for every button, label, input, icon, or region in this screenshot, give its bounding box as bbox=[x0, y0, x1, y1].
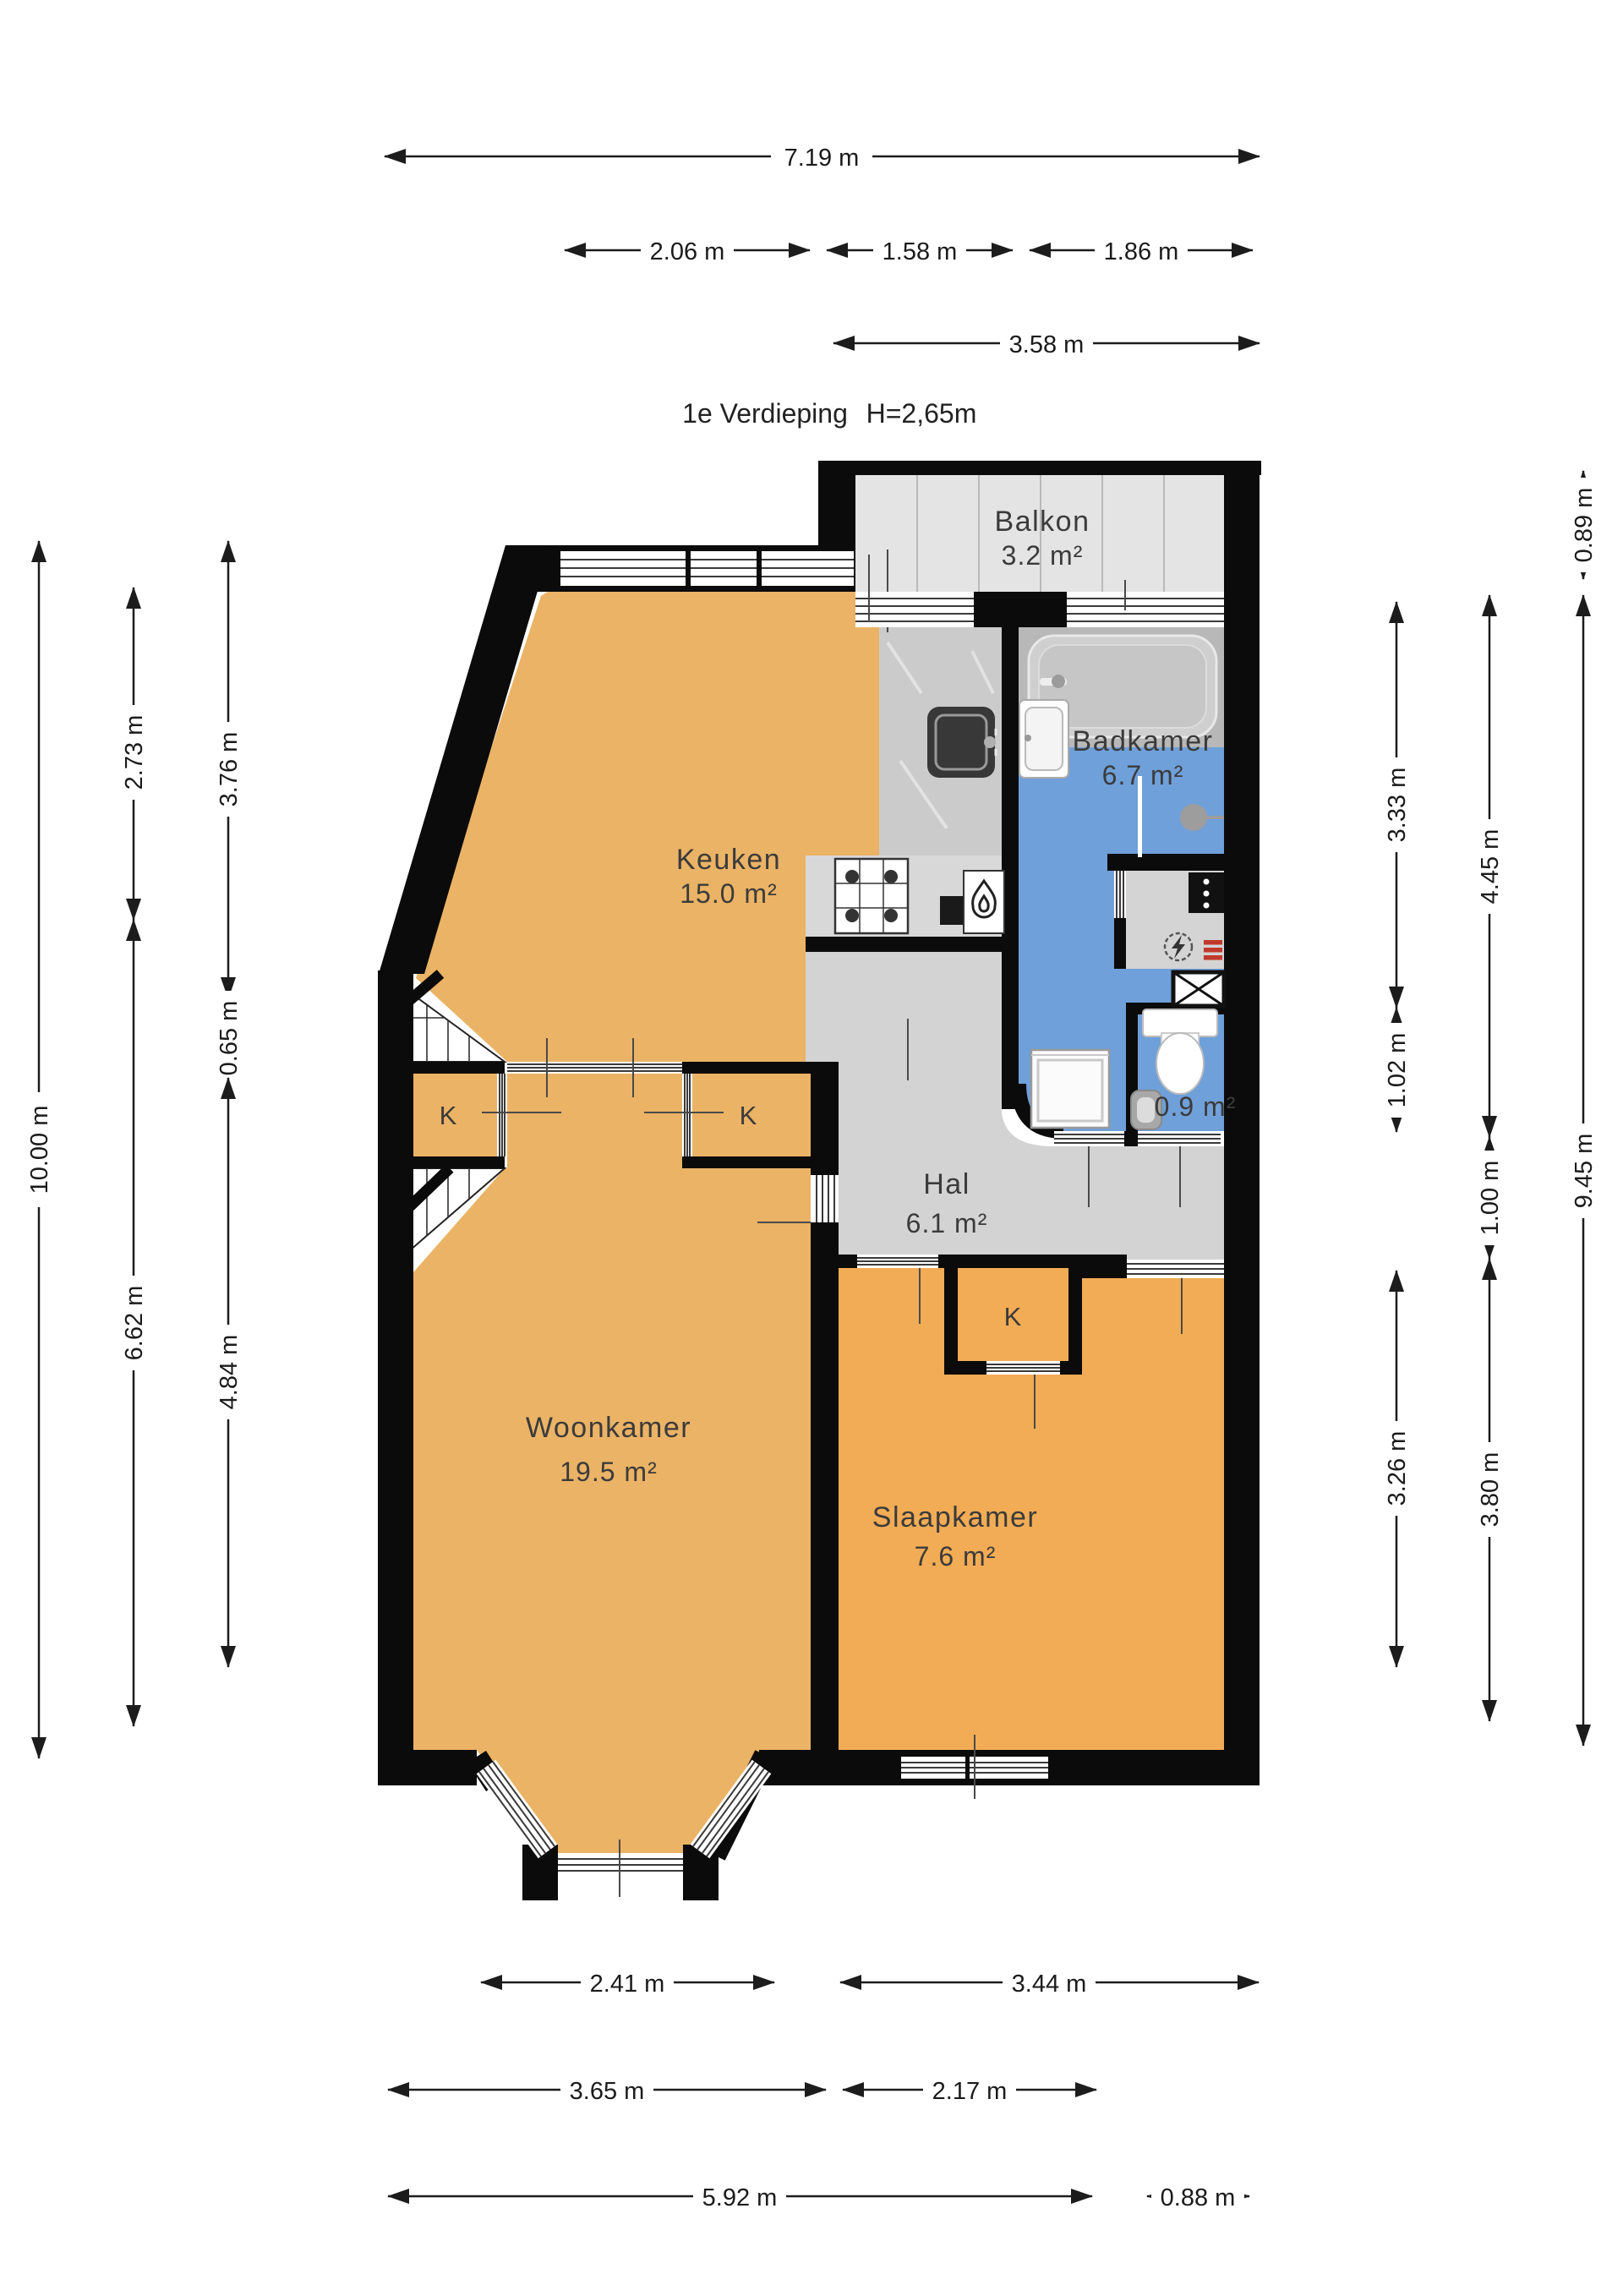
kitchen-appliance bbox=[940, 896, 964, 925]
balcony-door bbox=[974, 592, 1067, 627]
svg-text:4.84 m: 4.84 m bbox=[216, 1335, 243, 1410]
svg-text:2.41 m: 2.41 m bbox=[590, 1971, 665, 1998]
dim-top-balcony: 3.58 m bbox=[833, 330, 1260, 358]
dim-bottom-bedroom: 3.44 m bbox=[840, 1969, 1259, 1998]
dim-left-lower: 6.62 m bbox=[120, 920, 148, 1726]
dim-top-total: 7.19 m bbox=[385, 143, 1260, 172]
svg-text:2.73 m: 2.73 m bbox=[121, 715, 148, 790]
svg-text:3.58 m: 3.58 m bbox=[1009, 331, 1085, 358]
label-closet-bedroom: K bbox=[1004, 1302, 1022, 1331]
svg-text:1.86 m: 1.86 m bbox=[1104, 238, 1179, 265]
dim-bottom-bay: 2.41 m bbox=[481, 1969, 774, 1998]
dim-left-total: 10.00 m bbox=[25, 541, 53, 1758]
svg-text:0.65 m: 0.65 m bbox=[216, 1001, 243, 1076]
label-keuken: Keuken bbox=[676, 844, 781, 876]
label-balkon: Balkon bbox=[995, 506, 1090, 538]
dim-left-upper: 2.73 m bbox=[120, 588, 148, 920]
boiler-flame-icon bbox=[964, 871, 1004, 933]
dim-right-bath-total: 4.45 m bbox=[1476, 595, 1504, 1137]
label-hal-area: 6.1 m² bbox=[906, 1208, 988, 1238]
label-toilet-area: 0.9 m² bbox=[1155, 1091, 1237, 1122]
dim-bottom-hall-part: 2.17 m bbox=[843, 2076, 1096, 2105]
dim-right-total: 9.45 m bbox=[1570, 595, 1598, 1746]
dim-bottom-living: 3.65 m bbox=[388, 2076, 826, 2105]
shaft-cross-icon bbox=[1173, 972, 1224, 1006]
title-floor: 1e Verdieping bbox=[682, 398, 848, 429]
label-balkon-area: 3.2 m² bbox=[1002, 540, 1084, 571]
label-closet-right: K bbox=[740, 1101, 757, 1130]
dim-bottom-entry: 0.88 m bbox=[1147, 2183, 1249, 2211]
dim-top-sub3: 1.86 m bbox=[1030, 237, 1253, 265]
svg-text:9.45 m: 9.45 m bbox=[1571, 1134, 1598, 1209]
svg-text:2.06 m: 2.06 m bbox=[650, 238, 725, 265]
dim-right-bedroom-inner: 3.26 m bbox=[1383, 1271, 1411, 1667]
washing-machine bbox=[1031, 1050, 1109, 1128]
dim-right-balcony: 0.89 m bbox=[1570, 471, 1598, 579]
svg-text:1.58 m: 1.58 m bbox=[883, 238, 958, 265]
dim-left-col2-lower: 4.84 m bbox=[215, 1078, 243, 1667]
svg-text:4.45 m: 4.45 m bbox=[1477, 829, 1504, 905]
kitchen-sink bbox=[927, 707, 996, 778]
dim-right-hall: 1.00 m bbox=[1476, 1137, 1504, 1259]
floorplan-page: Balkon 3.2 m² Keuken 15.0 m² Badkamer 6.… bbox=[0, 0, 1623, 2296]
label-woonkamer: Woonkamer bbox=[526, 1412, 691, 1444]
meter-cupboard-door bbox=[1114, 871, 1126, 918]
dim-right-bedroom: 3.80 m bbox=[1476, 1259, 1504, 1721]
dim-left-col2-upper: 3.76 m bbox=[215, 541, 243, 998]
svg-text:1.00 m: 1.00 m bbox=[1477, 1161, 1504, 1236]
bathroom-sink bbox=[1019, 700, 1068, 778]
svg-text:1.02 m: 1.02 m bbox=[1384, 1033, 1411, 1108]
label-slaapkamer: Slaapkamer bbox=[872, 1501, 1038, 1533]
dim-right-toilet: 1.02 m bbox=[1383, 1008, 1411, 1132]
label-woonkamer-area: 19.5 m² bbox=[560, 1457, 657, 1487]
svg-text:3.44 m: 3.44 m bbox=[1012, 1971, 1087, 1998]
label-badkamer: Badkamer bbox=[1073, 725, 1214, 757]
label-slaapkamer-area: 7.6 m² bbox=[915, 1541, 997, 1572]
svg-text:6.62 m: 6.62 m bbox=[121, 1286, 148, 1361]
svg-text:3.80 m: 3.80 m bbox=[1477, 1452, 1504, 1528]
dim-right-bath: 3.33 m bbox=[1383, 602, 1411, 1008]
plan-title: 1e Verdieping H=2,65m bbox=[682, 398, 976, 429]
dim-top-sub2: 1.58 m bbox=[827, 237, 1013, 265]
svg-text:5.92 m: 5.92 m bbox=[702, 2184, 778, 2211]
dim-bottom-total: 5.92 m bbox=[388, 2183, 1092, 2211]
svg-text:3.33 m: 3.33 m bbox=[1384, 768, 1411, 843]
svg-text:0.89 m: 0.89 m bbox=[1571, 488, 1598, 563]
label-closet-left: K bbox=[440, 1101, 457, 1130]
svg-text:10.00 m: 10.00 m bbox=[26, 1106, 53, 1194]
svg-text:0.88 m: 0.88 m bbox=[1161, 2184, 1236, 2211]
svg-text:2.17 m: 2.17 m bbox=[932, 2078, 1008, 2105]
label-hal: Hal bbox=[923, 1168, 970, 1200]
svg-text:3.76 m: 3.76 m bbox=[216, 732, 243, 807]
dim-left-col2-mid: 0.65 m bbox=[215, 991, 243, 1085]
svg-text:7.19 m: 7.19 m bbox=[784, 145, 860, 172]
label-badkamer-area: 6.7 m² bbox=[1102, 760, 1184, 790]
label-keuken-area: 15.0 m² bbox=[680, 878, 777, 909]
title-height: H=2,65m bbox=[866, 398, 977, 429]
svg-text:3.26 m: 3.26 m bbox=[1384, 1431, 1411, 1506]
svg-text:3.65 m: 3.65 m bbox=[570, 2078, 645, 2105]
stove bbox=[835, 859, 908, 933]
dim-top-sub1: 2.06 m bbox=[565, 237, 810, 265]
floorplan-drawing: Balkon 3.2 m² Keuken 15.0 m² Badkamer 6.… bbox=[0, 0, 1623, 2296]
